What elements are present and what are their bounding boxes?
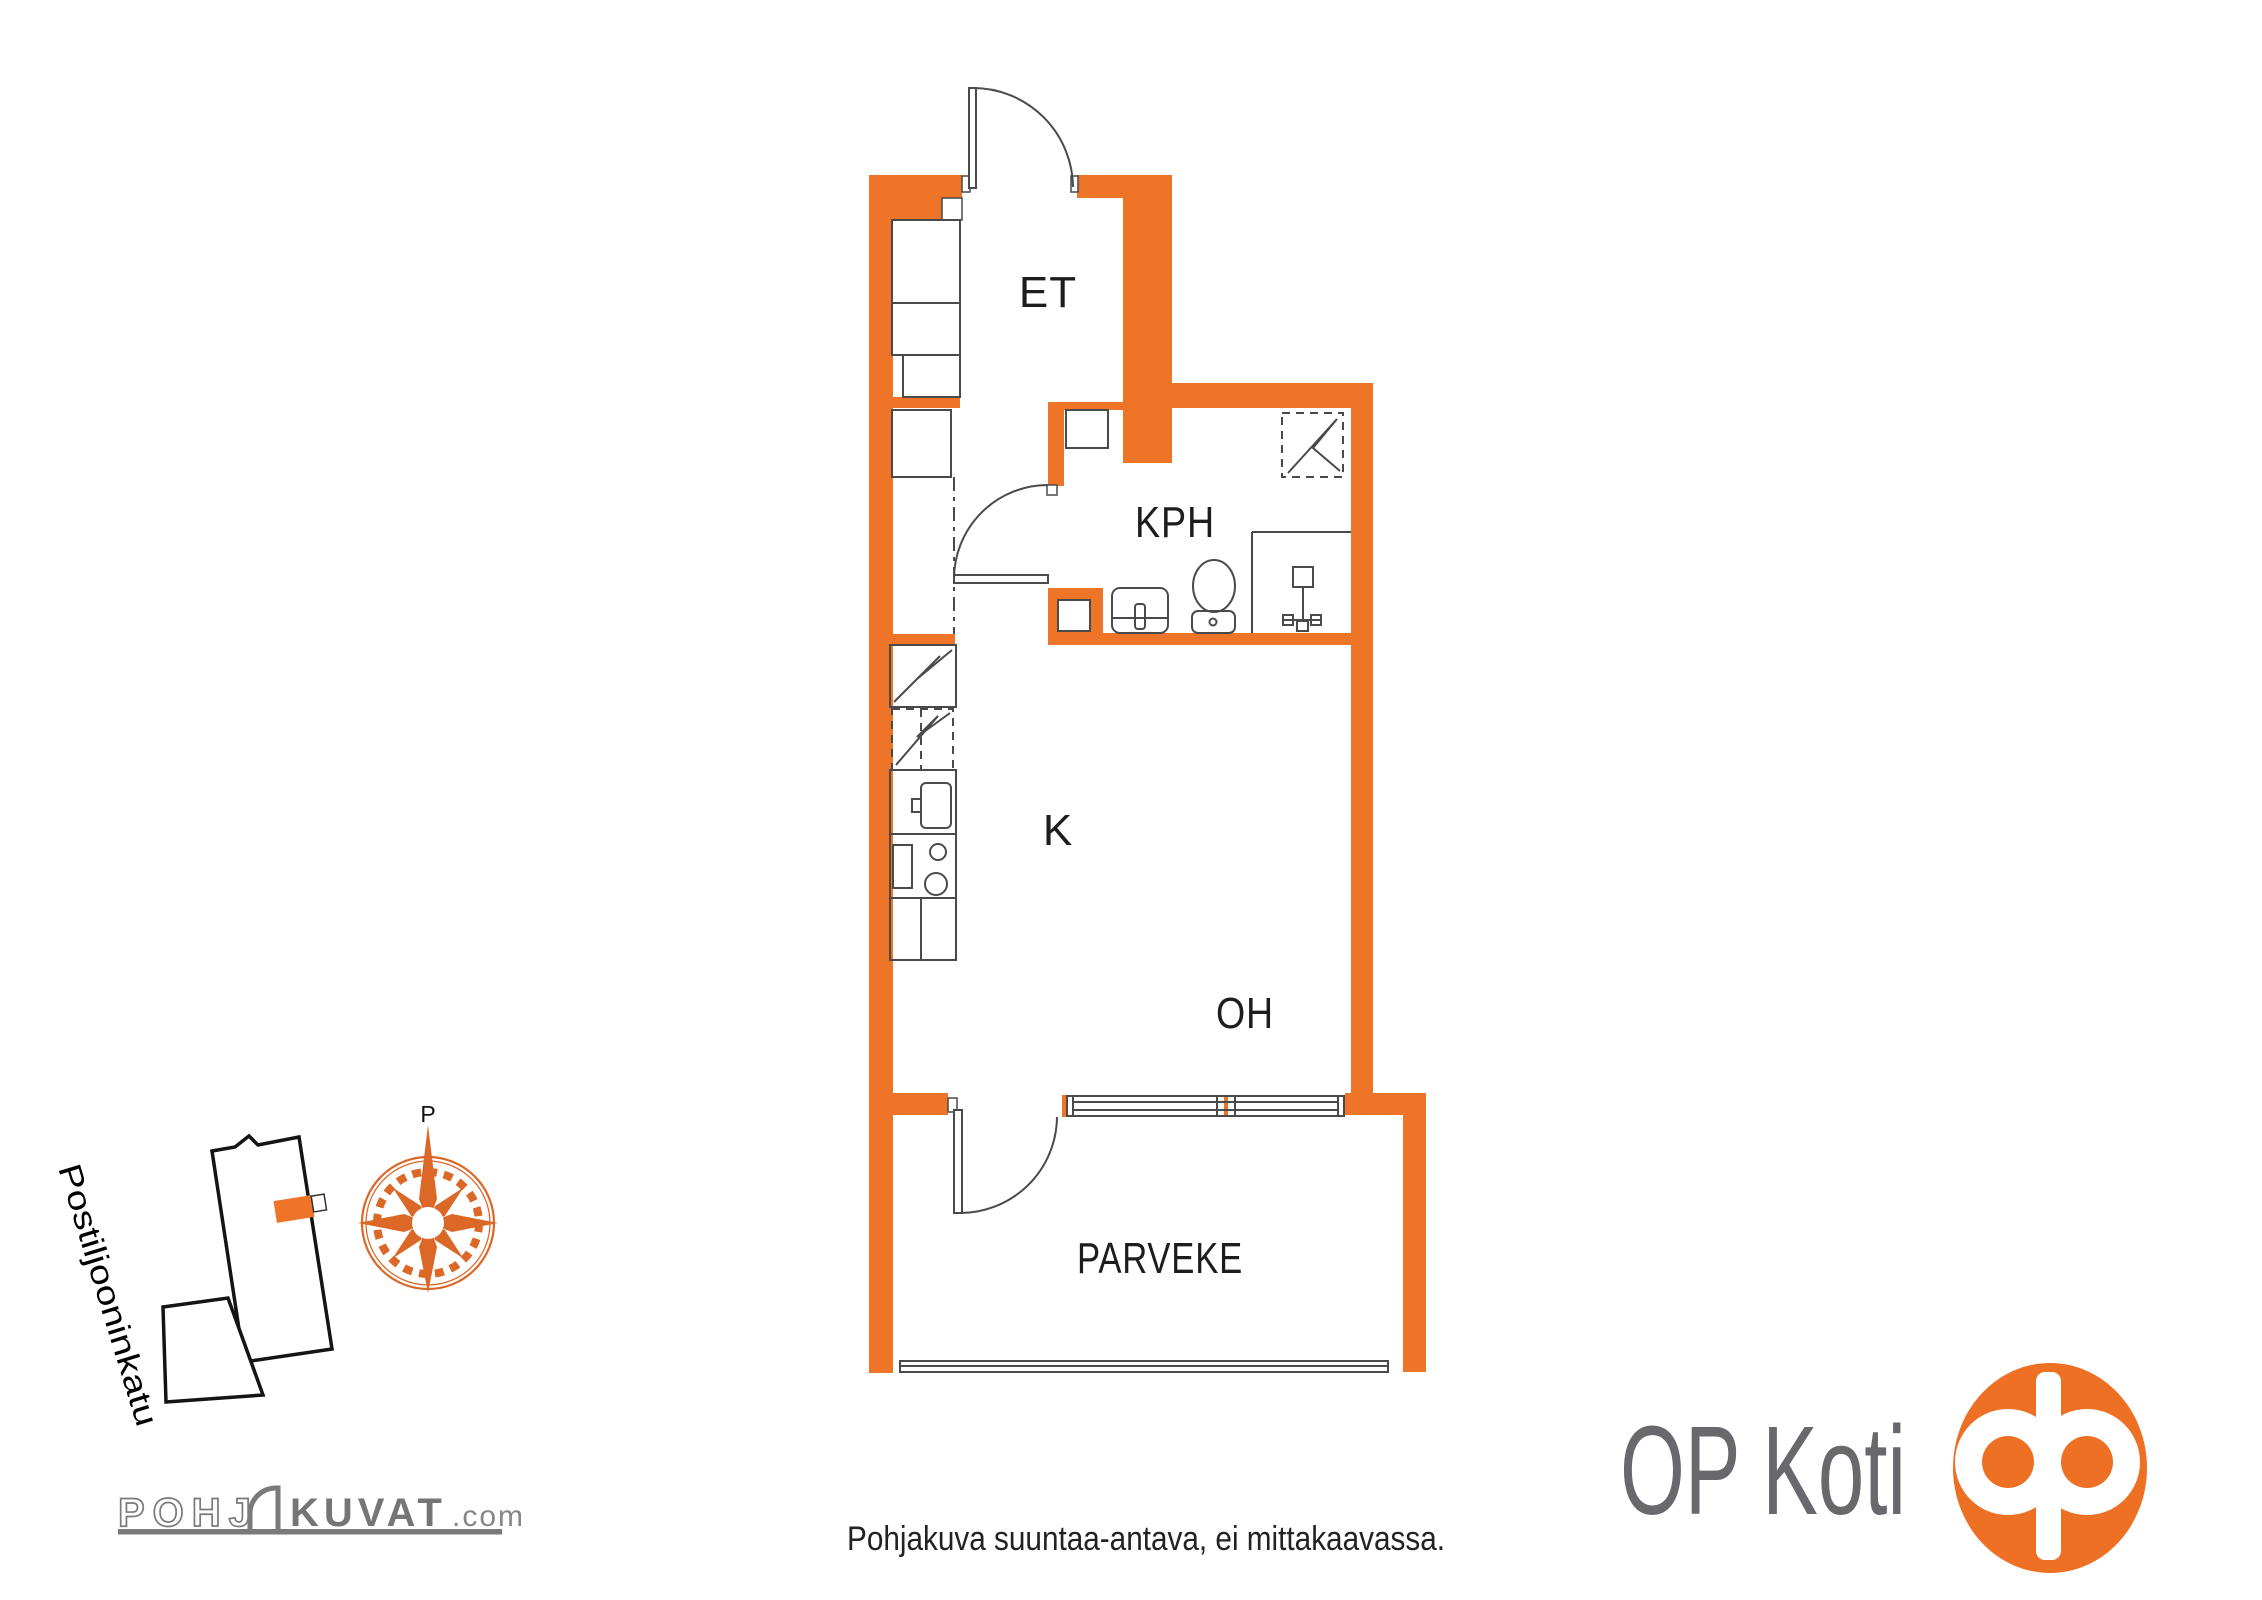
op-koti-wordmark: OP Koti [1620, 1400, 1906, 1541]
toilet-button [1210, 619, 1217, 626]
bathroom-sink [1112, 588, 1168, 633]
disclaimer-text: Pohjakuva suuntaa-antava, ei mittakaavas… [847, 1520, 1445, 1558]
floor-plan-canvas: ET KPH K OH PARVEKE P Postiljooninkatu P… [0, 0, 2262, 1600]
wall-column-et-kph [1123, 175, 1172, 463]
kph-door-strike [1047, 485, 1057, 495]
compass-rose-icon: P [358, 1101, 498, 1293]
wall-balcony-right [1403, 1115, 1426, 1372]
balcony-door-arc [958, 1117, 1057, 1213]
balcony-railing [900, 1361, 1388, 1372]
wall-stub-closet [893, 397, 960, 408]
balcony-door-leaf [954, 1110, 962, 1213]
fridge-symbol [894, 650, 952, 702]
hall-wardrobes [892, 220, 960, 634]
window-frame [1067, 1096, 1344, 1116]
kitchen-sink [921, 783, 951, 828]
pohjakuvat-logo: POHJ KUVAT .com [118, 1488, 525, 1535]
wardrobe-cabinet [892, 220, 960, 303]
wall-stub-balcony-left [893, 1093, 948, 1115]
wall-right [1351, 408, 1373, 1093]
stove-burner [930, 844, 946, 860]
shower-knob [1297, 621, 1308, 631]
bathroom-faucet [1135, 604, 1145, 629]
entrance-door-arc [973, 88, 1073, 187]
duct-shaft-kph-bottom [1058, 600, 1090, 631]
wall-top-right [1077, 175, 1123, 198]
wall-top-left [893, 175, 962, 198]
room-label-oh: OH [1216, 989, 1274, 1038]
wall-stub-kitchen [893, 634, 955, 645]
wardrobe-cabinet [903, 355, 960, 397]
op-koti-logo: OP Koti [1620, 1363, 2147, 1573]
entrance-jamb-box [942, 198, 962, 220]
kph-door-leaf [954, 575, 1048, 583]
appliance-symbol [896, 713, 950, 765]
room-label-parveke: PARVEKE [1077, 1234, 1243, 1283]
kitchen-faucet [912, 799, 921, 812]
room-label-kph: KPH [1135, 498, 1215, 547]
shower-head [1293, 567, 1313, 587]
op-symbol-icon [1953, 1363, 2147, 1573]
wall-kph-bottom [1103, 633, 1352, 645]
wall-balcony-jog [1345, 1093, 1426, 1115]
kph-door-arc [954, 485, 1048, 579]
living-room-window [1067, 1096, 1344, 1116]
pohjakuvat-logo-solid-text: KUVAT [290, 1491, 447, 1535]
toilet-bowl [1193, 560, 1235, 612]
floorplan-page: { "plan": { "rooms": [ {"id": "et", "lab… [0, 0, 2262, 1600]
kph-door [954, 485, 1048, 583]
kitchen-fixtures [890, 645, 956, 960]
room-label-k: K [1043, 806, 1073, 855]
stove-burner [925, 873, 947, 895]
wall-kph-top [1172, 383, 1373, 408]
entrance-door-leaf [969, 88, 976, 188]
pohjakuvat-logo-underline [118, 1529, 502, 1535]
street-name: Postiljooninkatu [51, 1160, 165, 1431]
wardrobe-cabinet [892, 410, 951, 477]
wall-top-left-corner [893, 198, 942, 220]
stove-panel [893, 845, 912, 888]
site-map: Postiljooninkatu [51, 1136, 332, 1430]
toilet-tank [1192, 611, 1235, 633]
wall-kph-left-strip [1048, 402, 1064, 486]
balcony-door [954, 1110, 1057, 1213]
window-mullion-center [1224, 1097, 1228, 1115]
kitchen-counter [890, 770, 956, 960]
pohjakuvat-logo-suffix: .com [452, 1500, 525, 1533]
duct-shaft-kph-top [1066, 410, 1108, 448]
entrance-door [969, 88, 1073, 188]
north-indicator-label: P [420, 1101, 435, 1127]
washer-symbol [1288, 419, 1340, 473]
wardrobe-cabinet [892, 303, 960, 355]
pohjakuvat-logo-outline-text: POHJ [118, 1491, 259, 1535]
room-label-et: ET [1019, 268, 1077, 317]
